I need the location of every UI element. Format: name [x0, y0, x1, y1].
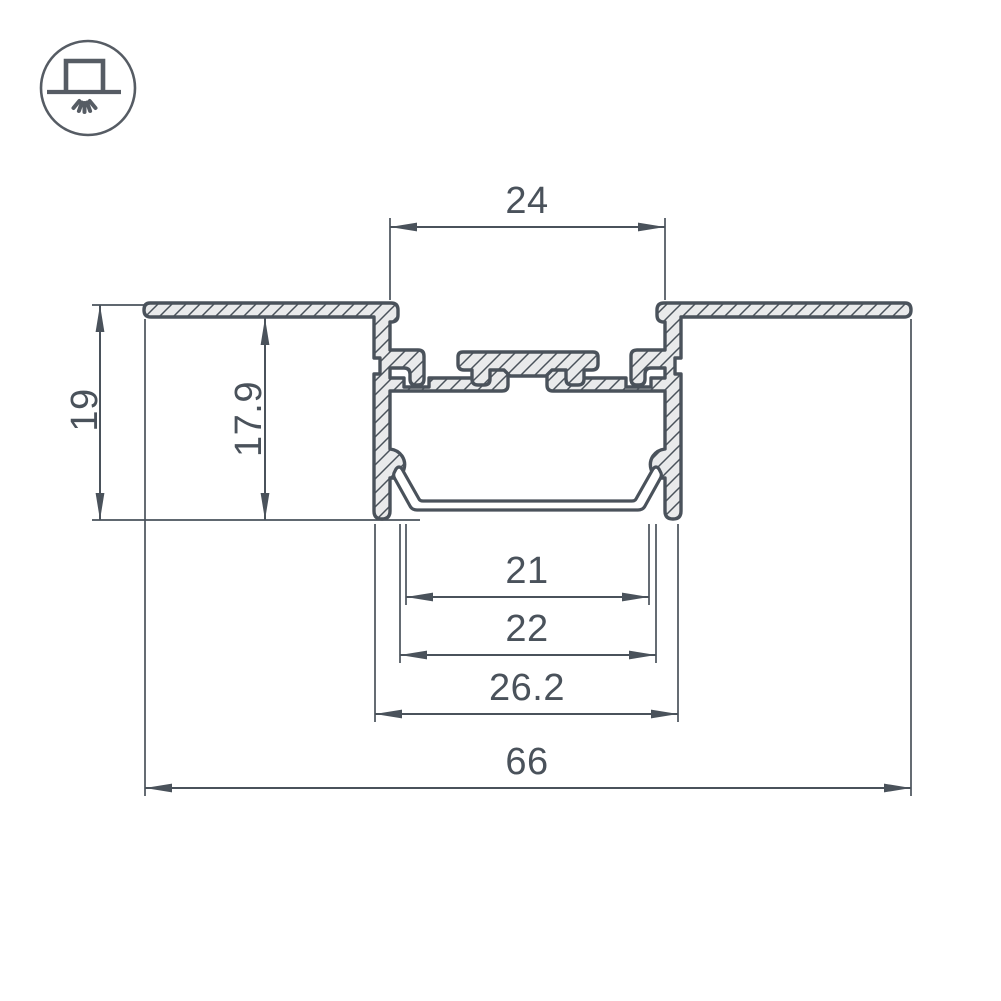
icon-light-rays: [74, 101, 96, 112]
dimension-overall-flange-width: 66: [145, 741, 911, 788]
dimension-overall-height: 19: [64, 305, 106, 520]
technical-drawing-page: 24 19 17.9 21 22 26.2 66: [0, 0, 1001, 1001]
icon-box: [66, 61, 103, 92]
dim-label-22: 22: [505, 608, 548, 650]
profile-right-section: [547, 303, 911, 519]
dim-label-26-2: 26.2: [489, 667, 565, 709]
diffuser: [394, 467, 662, 510]
icon-circle: [41, 41, 135, 135]
dim-label-21: 21: [505, 550, 548, 592]
profile-right-outline: [547, 303, 911, 519]
dimension-diffuser-inner-width: 21: [406, 550, 649, 597]
profile-left-section: [144, 303, 508, 519]
dim-label-24: 24: [505, 180, 548, 222]
dim-label-19: 19: [64, 388, 106, 431]
recessed-luminaire-icon: [41, 41, 135, 135]
dim-label-66: 66: [505, 741, 548, 783]
dimension-diffuser-outer-width: 22: [400, 608, 656, 655]
profile-cross-section-drawing: 24 19 17.9 21 22 26.2 66: [0, 0, 1001, 1001]
dimension-inner-depth: 17.9: [228, 318, 270, 520]
dimension-top-opening-width: 24: [390, 180, 665, 227]
dim-label-17-9: 17.9: [228, 381, 270, 457]
dimension-body-width: 26.2: [375, 667, 678, 714]
profile-center-plate: [458, 352, 598, 385]
